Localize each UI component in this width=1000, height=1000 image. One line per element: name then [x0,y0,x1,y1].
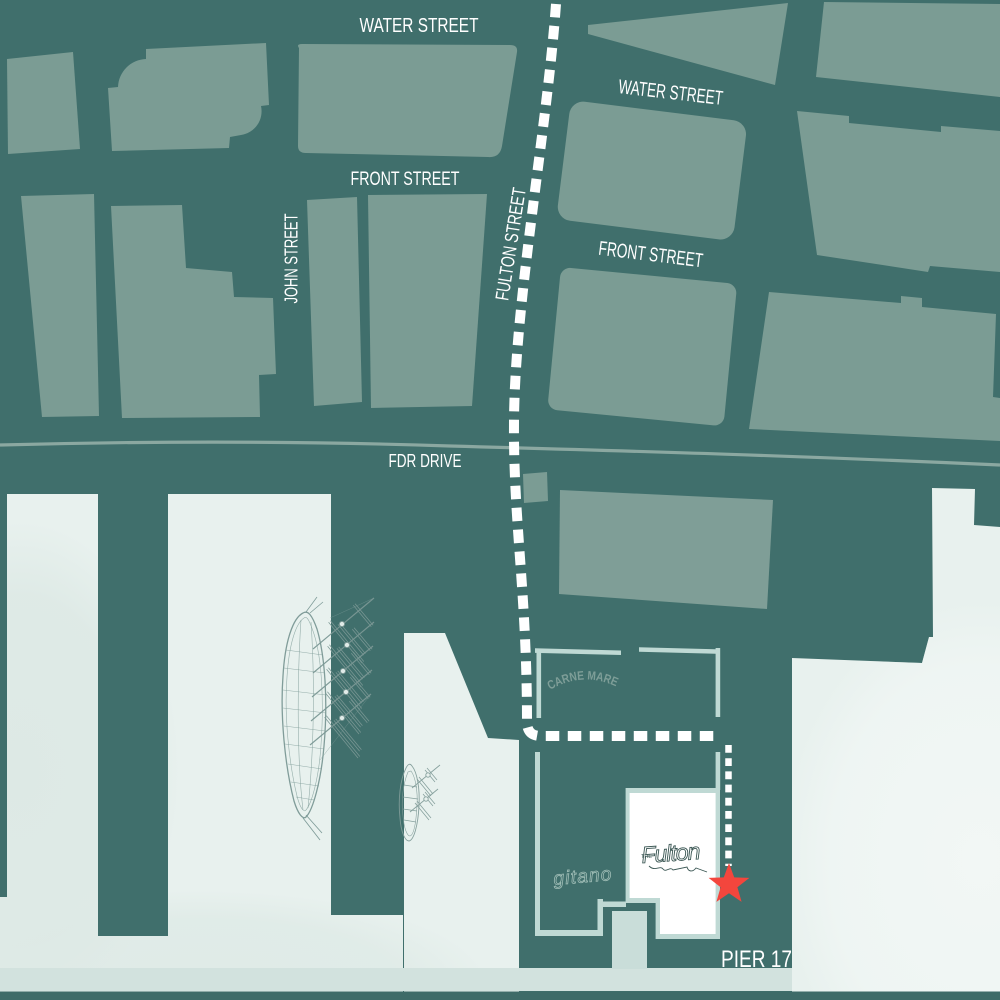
svg-text:THE: THE [641,854,652,860]
svg-text:FRONT STREET: FRONT STREET [351,169,460,190]
svg-text:Fulton: Fulton [641,838,702,868]
svg-text:PIER 17: PIER 17 [721,946,792,973]
svg-text:JOHN STREET: JOHN STREET [281,214,302,304]
svg-text:WATER STREET: WATER STREET [360,14,479,37]
svg-text:FDR DRIVE: FDR DRIVE [389,451,462,471]
